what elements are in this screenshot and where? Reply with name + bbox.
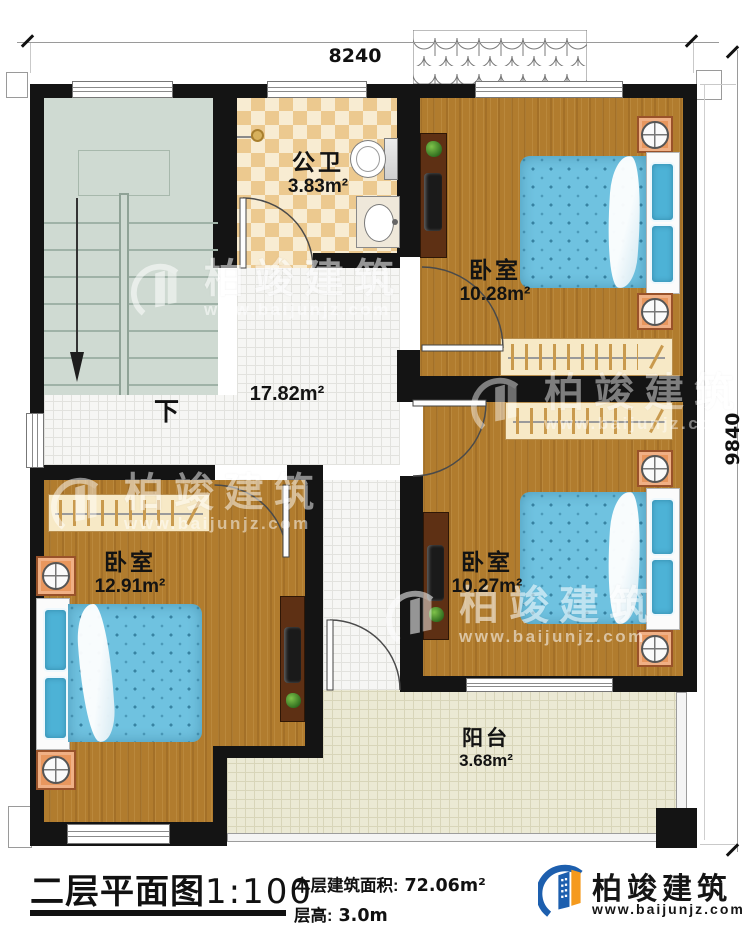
room-area: 3.83m²: [258, 176, 378, 197]
plan-title-row: 二层平面图1:100: [30, 864, 313, 913]
room-name: 卧室: [427, 550, 547, 576]
bedroom-bottom-right-door-arc: [413, 403, 486, 476]
extension-line: [700, 84, 736, 85]
floor-height-value: 3.0m: [339, 906, 388, 926]
bathroom-door-leaf: [240, 198, 246, 268]
dimension-line-top: [17, 42, 719, 43]
room-label-bedroom-bottom-right: 卧室 10.27m²: [427, 550, 547, 597]
dimension-width-label: 8240: [295, 45, 415, 67]
room-label-hall: 17.82m²: [227, 383, 347, 405]
floor-height-label: 层高:: [294, 907, 333, 925]
bathroom-door-arc: [243, 198, 313, 268]
room-label-balcony: 阳台 3.68m²: [426, 727, 546, 770]
room-name: 阳台: [426, 727, 546, 751]
bedroom-bottom-right-door-leaf: [413, 400, 486, 406]
room-label-bedroom-bottom-left: 卧室 12.91m²: [70, 550, 190, 597]
room-area: 17.82m²: [227, 383, 347, 405]
plan-title: 二层平面图: [30, 873, 205, 911]
room-area: 10.27m²: [427, 576, 547, 597]
room-name: 公卫: [258, 150, 378, 176]
balcony-door-arc: [330, 620, 400, 690]
extension-line: [693, 43, 694, 73]
floor-area-value: 72.06m²: [405, 876, 486, 896]
room-name: 卧室: [435, 258, 555, 284]
extension-line: [30, 43, 31, 73]
bedroom-top-right-door-leaf: [422, 345, 503, 351]
stairs-down-label: 下: [154, 392, 179, 428]
brand-url: www.baijunjz.com: [592, 901, 745, 917]
title-underline: [30, 910, 286, 916]
room-label-bedroom-top-right: 卧室 10.28m²: [435, 258, 555, 305]
floorplan-canvas: 柏竣建筑 www.baijunjz.com 柏竣建筑 www.baijunjz.…: [0, 0, 750, 931]
floor-area-label: 本层建筑面积:: [294, 877, 399, 895]
door-swing-layer: [0, 0, 750, 931]
bedroom-bottom-left-door-arc: [215, 485, 287, 557]
bedroom-bottom-left-door-leaf: [283, 485, 289, 557]
balcony-door-leaf: [327, 620, 333, 690]
extension-line: [700, 844, 736, 845]
brand-logo-icon: [538, 860, 588, 922]
room-area: 12.91m²: [70, 576, 190, 597]
room-area: 3.68m²: [426, 751, 546, 770]
floor-height-line: 层高:3.0m: [294, 902, 388, 926]
room-label-bathroom: 公卫 3.83m²: [258, 150, 378, 197]
room-area: 10.28m²: [435, 284, 555, 305]
room-name: 卧室: [70, 550, 190, 576]
dimension-height-label: 9840: [722, 394, 744, 484]
floor-area-line: 本层建筑面积:72.06m²: [294, 872, 486, 896]
